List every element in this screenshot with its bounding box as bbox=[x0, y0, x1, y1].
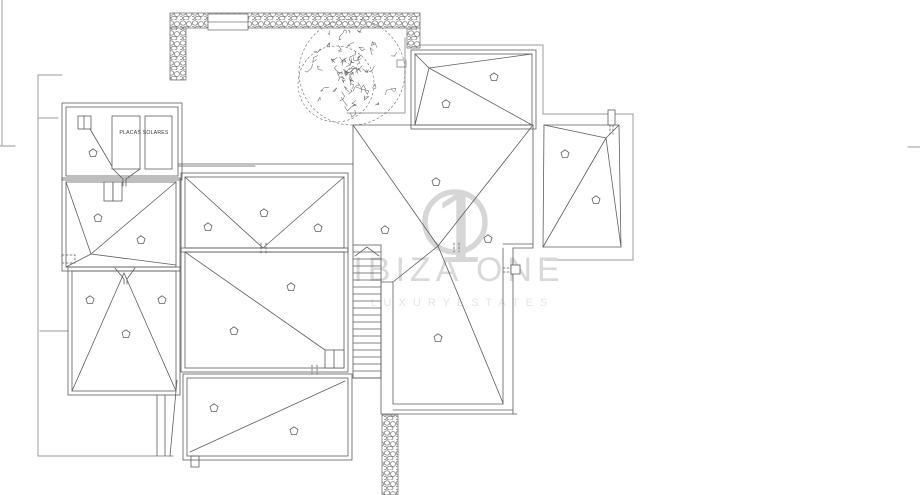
brand-text: IBIZA ONE bbox=[353, 251, 564, 289]
roof-vent-marker bbox=[89, 149, 97, 157]
roof-vent-marker bbox=[592, 196, 600, 204]
roof-vent-marker bbox=[260, 209, 268, 217]
roof-vent-marker bbox=[490, 73, 498, 81]
roof-vent-marker bbox=[204, 223, 212, 231]
roof-east bbox=[543, 125, 621, 247]
roof-vent-marker bbox=[381, 226, 389, 234]
roof-vent-marker bbox=[314, 224, 322, 232]
stone-wall-right-end bbox=[407, 28, 420, 48]
floorplan-page: 1IBIZA ONEL U X U R Y E S T A T E SPLACA… bbox=[0, 0, 920, 495]
roof-vent-marker bbox=[210, 404, 218, 412]
placas-solares-label: PLACAS SOLARES bbox=[119, 130, 169, 136]
roof-vent-marker bbox=[94, 214, 102, 222]
text-labels: PLACAS SOLARES bbox=[119, 130, 169, 136]
roof-vent-marker bbox=[434, 334, 442, 342]
roof-vent-marker bbox=[137, 236, 145, 244]
stone-wall-top bbox=[170, 13, 420, 28]
roof-vent-marker bbox=[122, 330, 130, 338]
roof-vent-marker bbox=[158, 296, 166, 304]
roof-vent-marker bbox=[442, 100, 450, 108]
garden-tree bbox=[298, 19, 405, 125]
roof-vent-marker bbox=[86, 296, 94, 304]
roof-center-south bbox=[183, 374, 352, 460]
roof-floor-plan-drawing: 1IBIZA ONEL U X U R Y E S T A T E SPLACA… bbox=[0, 0, 920, 495]
stone-wall-left bbox=[170, 28, 186, 80]
roof-vent-marker bbox=[230, 327, 238, 335]
roof-vent-marker bbox=[561, 150, 569, 158]
roof-vent-marker bbox=[287, 283, 295, 291]
roof-vent-marker bbox=[290, 427, 298, 435]
stone-wall-bottom-right bbox=[382, 415, 398, 495]
